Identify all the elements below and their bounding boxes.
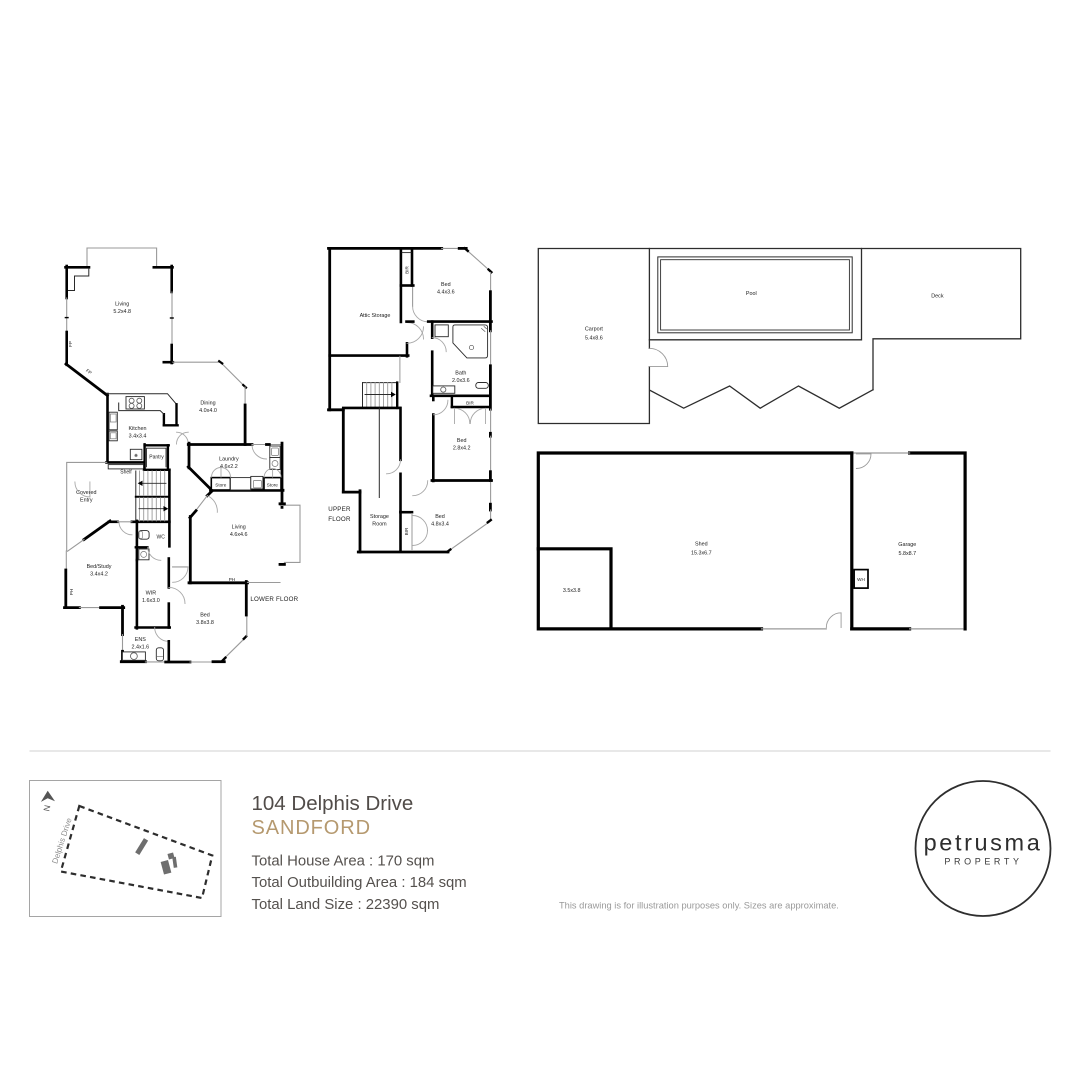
svg-text:LOWER FLOOR: LOWER FLOOR <box>250 596 298 603</box>
svg-text:Living: Living <box>115 302 129 308</box>
svg-text:SANDFORD: SANDFORD <box>252 817 371 839</box>
svg-text:4.4x3.6: 4.4x3.6 <box>437 290 455 296</box>
svg-text:Deck: Deck <box>931 294 944 300</box>
svg-text:Shed: Shed <box>695 542 708 548</box>
svg-text:3.5x3.8: 3.5x3.8 <box>563 588 581 594</box>
svg-text:4.6x2.2: 4.6x2.2 <box>220 464 238 470</box>
svg-text:Pool: Pool <box>746 291 757 297</box>
svg-text:Total House Area : 170 sqm: Total House Area : 170 sqm <box>252 854 435 870</box>
svg-text:3.4x4.2: 3.4x4.2 <box>90 572 108 578</box>
svg-text:petrusma: petrusma <box>924 830 1043 856</box>
svg-text:Storage: Storage <box>370 514 389 520</box>
svg-text:PROPERTY: PROPERTY <box>944 857 1022 867</box>
svg-text:15.3x6.7: 15.3x6.7 <box>691 551 712 557</box>
svg-text:4.8x3.4: 4.8x3.4 <box>431 522 449 528</box>
svg-text:3.8x3.8: 3.8x3.8 <box>196 620 214 626</box>
svg-text:Bed: Bed <box>200 613 210 619</box>
svg-text:Bed: Bed <box>441 282 451 288</box>
svg-text:BIR: BIR <box>404 527 409 535</box>
svg-text:Bed/Study: Bed/Study <box>87 564 112 570</box>
svg-text:Kitchen: Kitchen <box>129 426 147 432</box>
svg-text:2.0x3.6: 2.0x3.6 <box>452 378 470 384</box>
svg-text:4.6x4.6: 4.6x4.6 <box>230 532 248 538</box>
svg-text:Total Outbuilding Area : 184 s: Total Outbuilding Area : 184 sqm <box>252 875 467 891</box>
svg-text:2.4x1.6: 2.4x1.6 <box>131 645 149 651</box>
svg-text:UPPER: UPPER <box>328 506 351 513</box>
svg-text:3.4x3.4: 3.4x3.4 <box>129 434 147 440</box>
svg-text:Dining: Dining <box>200 401 215 407</box>
svg-text:Shelf: Shelf <box>120 470 132 476</box>
svg-text:BIR: BIR <box>404 265 409 273</box>
svg-text:Store: Store <box>267 482 278 487</box>
svg-text:5.8x8.7: 5.8x8.7 <box>898 551 916 557</box>
svg-text:5.4x8.6: 5.4x8.6 <box>585 336 603 342</box>
svg-text:BIR: BIR <box>466 400 474 405</box>
svg-text:PH: PH <box>69 589 74 595</box>
svg-text:Carport: Carport <box>585 327 603 333</box>
svg-text:WIR: WIR <box>146 591 157 597</box>
svg-text:This drawing is for illustrati: This drawing is for illustration purpose… <box>559 901 839 911</box>
svg-text:WH: WH <box>857 577 865 582</box>
svg-text:Entry: Entry <box>80 498 93 504</box>
svg-text:Living: Living <box>232 525 246 531</box>
svg-text:Store: Store <box>215 482 226 487</box>
svg-text:Bed: Bed <box>435 514 445 520</box>
svg-text:Bath: Bath <box>455 371 466 377</box>
svg-text:4.0x4.0: 4.0x4.0 <box>199 408 217 414</box>
svg-text:2.8x4.2: 2.8x4.2 <box>453 446 471 452</box>
svg-text:Laundry: Laundry <box>219 457 239 463</box>
svg-text:Pantry: Pantry <box>149 455 164 461</box>
svg-text:Bed: Bed <box>457 438 467 444</box>
svg-text:Total Land Size : 22390 sqm: Total Land Size : 22390 sqm <box>252 897 440 913</box>
svg-text:WC: WC <box>157 535 166 541</box>
svg-text:FLOOR: FLOOR <box>328 516 351 523</box>
svg-text:Room: Room <box>372 522 387 528</box>
svg-text:Attic Storage: Attic Storage <box>360 313 391 319</box>
svg-text:ENS: ENS <box>135 637 146 643</box>
svg-text:104 Delphis Drive: 104 Delphis Drive <box>252 792 414 815</box>
svg-text:1.6x3.0: 1.6x3.0 <box>142 598 160 604</box>
svg-text:5.2x4.8: 5.2x4.8 <box>113 309 131 315</box>
svg-text:❋: ❋ <box>134 453 138 458</box>
svg-text:FP: FP <box>68 341 73 347</box>
svg-text:Garage: Garage <box>898 542 916 548</box>
svg-text:PH: PH <box>229 577 235 582</box>
